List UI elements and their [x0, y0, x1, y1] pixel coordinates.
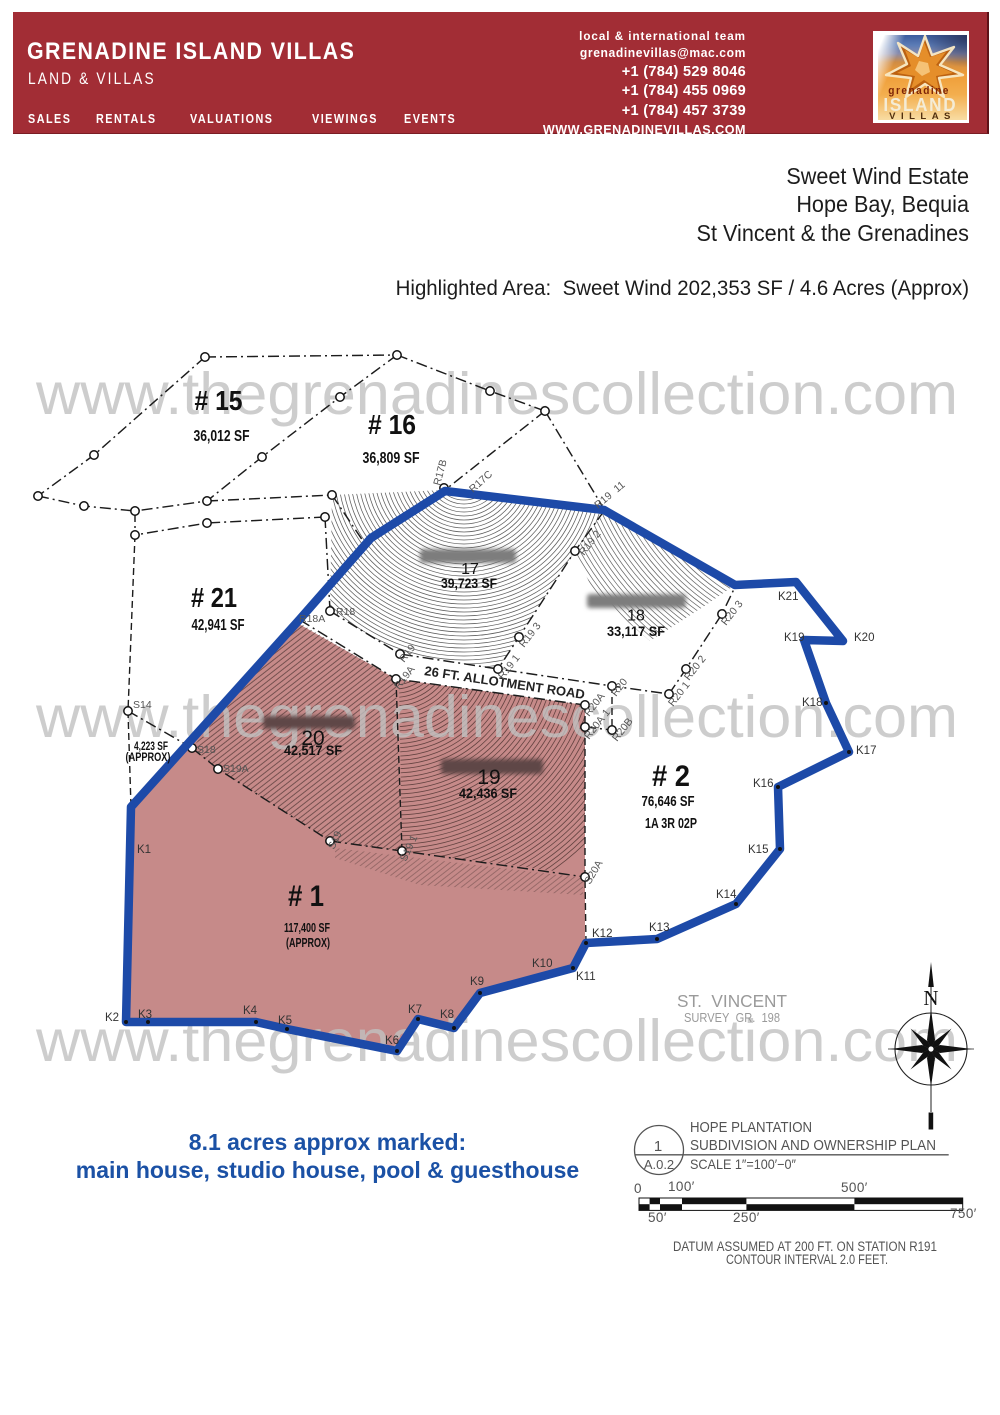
svg-text:K20: K20 [854, 632, 874, 644]
svg-text:K9: K9 [470, 976, 484, 988]
svg-text:42,436 SF: 42,436 SF [459, 785, 517, 801]
svg-text:K11: K11 [576, 971, 596, 983]
svg-text:# 1: # 1 [288, 880, 324, 913]
svg-text:K15: K15 [748, 844, 768, 856]
svg-text:100′: 100′ [668, 1179, 695, 1194]
svg-text:K8: K8 [440, 1009, 454, 1021]
svg-text:250′: 250′ [733, 1210, 760, 1225]
svg-text:1A 3R 02P: 1A 3R 02P [645, 816, 697, 832]
svg-text:K14: K14 [716, 889, 737, 901]
svg-text:1: 1 [654, 1138, 662, 1155]
svg-text:SUBDIVISION AND OWNERSHIP PLAN: SUBDIVISION AND OWNERSHIP PLAN [690, 1137, 936, 1154]
svg-text:S14: S14 [133, 699, 152, 711]
svg-text:(APPROX): (APPROX) [286, 935, 330, 950]
svg-text:117,400 SF: 117,400 SF [284, 920, 330, 935]
svg-text:R17B: R17B [431, 458, 449, 486]
svg-text:SCALE 1″=100′−0″: SCALE 1″=100′−0″ [690, 1156, 796, 1172]
svg-text:K4: K4 [243, 1005, 258, 1017]
svg-text:36,809 SF: 36,809 SF [363, 450, 420, 467]
svg-text:K16: K16 [753, 778, 773, 790]
svg-text:50′: 50′ [648, 1210, 667, 1225]
svg-text:K19: K19 [784, 632, 804, 644]
svg-text:750′: 750′ [950, 1206, 977, 1221]
svg-text:K3: K3 [138, 1009, 152, 1021]
svg-text:K6: K6 [385, 1035, 399, 1047]
svg-text:500′: 500′ [841, 1180, 868, 1195]
svg-text:S19A: S19A [223, 763, 249, 775]
svg-text:N: N [923, 986, 938, 1010]
svg-text:# 16: # 16 [368, 409, 416, 440]
svg-text:ST. VINCENT: ST. VINCENT [677, 991, 787, 1011]
svg-text:18: 18 [627, 608, 645, 625]
svg-text:# 21: # 21 [191, 582, 237, 613]
svg-text:HOPE PLANTATION: HOPE PLANTATION [690, 1119, 812, 1136]
svg-text:K10: K10 [532, 958, 552, 970]
svg-text:# 2: # 2 [652, 760, 690, 793]
svg-text:K5: K5 [278, 1015, 292, 1027]
svg-text:CONTOUR INTERVAL 2.0 FEET.: CONTOUR INTERVAL 2.0 FEET. [726, 1252, 888, 1267]
svg-text:R19 11: R19 11 [592, 479, 627, 511]
svg-text:K2: K2 [105, 1012, 119, 1024]
svg-text:K17: K17 [856, 745, 876, 757]
svg-text:42,517 SF: 42,517 SF [284, 742, 342, 758]
svg-text:76,646 SF: 76,646 SF [642, 794, 695, 810]
svg-text:K12: K12 [592, 928, 612, 940]
svg-text:K1: K1 [137, 844, 151, 856]
svg-text:(APPROX): (APPROX) [126, 752, 171, 764]
svg-text:K21: K21 [778, 591, 798, 603]
svg-text:R18A: R18A [299, 613, 325, 625]
svg-text:SURVEY GR. 198: SURVEY GR. 198 [684, 1010, 780, 1025]
svg-text:36,012 SF: 36,012 SF [194, 428, 250, 445]
svg-text:42,941 SF: 42,941 SF [192, 617, 245, 634]
svg-text:K18: K18 [802, 697, 822, 709]
svg-text:# 15: # 15 [195, 385, 243, 416]
svg-text:33,117 SF: 33,117 SF [607, 623, 665, 639]
svg-text:K7: K7 [408, 1004, 422, 1016]
svg-text:39,723 SF: 39,723 SF [441, 575, 497, 591]
svg-text:R18: R18 [336, 606, 355, 618]
svg-text:S18: S18 [197, 744, 216, 756]
svg-text:K13: K13 [649, 922, 669, 934]
